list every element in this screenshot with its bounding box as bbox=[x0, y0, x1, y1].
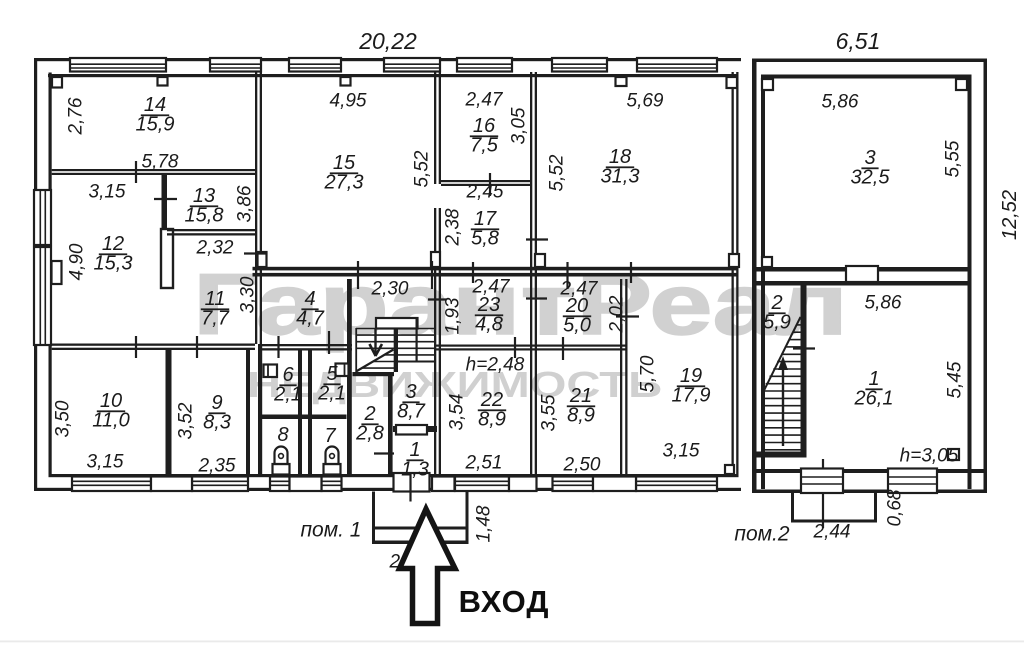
svg-text:4,90: 4,90 bbox=[67, 243, 88, 280]
svg-text:5,86: 5,86 bbox=[822, 92, 859, 113]
svg-text:2,1: 2,1 bbox=[317, 382, 346, 404]
svg-text:0,68: 0,68 bbox=[885, 489, 906, 526]
svg-text:3,15: 3,15 bbox=[663, 441, 700, 462]
svg-text:17,9: 17,9 bbox=[672, 384, 711, 406]
svg-text:8: 8 bbox=[277, 424, 288, 446]
svg-text:6,51: 6,51 bbox=[836, 28, 881, 54]
svg-text:7,7: 7,7 bbox=[201, 307, 230, 329]
svg-text:20,22: 20,22 bbox=[358, 28, 417, 54]
svg-text:пом.2: пом.2 bbox=[734, 522, 789, 545]
svg-text:h=3,05: h=3,05 bbox=[900, 446, 959, 467]
svg-text:4,8: 4,8 bbox=[475, 313, 503, 335]
svg-text:2,35: 2,35 bbox=[198, 456, 236, 477]
svg-text:5,55: 5,55 bbox=[943, 140, 964, 177]
svg-text:2,30: 2,30 bbox=[371, 279, 409, 300]
svg-text:5,52: 5,52 bbox=[547, 154, 568, 191]
svg-text:2,45: 2,45 bbox=[466, 182, 504, 203]
svg-text:15,8: 15,8 bbox=[185, 204, 224, 226]
svg-text:3,05: 3,05 bbox=[509, 107, 530, 144]
svg-text:15,9: 15,9 bbox=[136, 113, 175, 135]
svg-text:5,78: 5,78 bbox=[142, 152, 179, 173]
svg-text:5,8: 5,8 bbox=[471, 227, 499, 249]
svg-text:8,9: 8,9 bbox=[478, 408, 506, 430]
svg-text:3,54: 3,54 bbox=[447, 394, 468, 431]
svg-text:ВХОД: ВХОД bbox=[459, 584, 550, 619]
svg-text:5,0: 5,0 bbox=[563, 314, 591, 336]
svg-text:2,47: 2,47 bbox=[465, 90, 504, 111]
svg-text:2,50: 2,50 bbox=[563, 455, 601, 476]
svg-text:3,50: 3,50 bbox=[53, 400, 74, 437]
svg-text:2,38: 2,38 bbox=[443, 208, 464, 246]
svg-text:8,7: 8,7 bbox=[397, 400, 426, 422]
svg-text:3,55: 3,55 bbox=[539, 394, 560, 431]
svg-text:2,44: 2,44 bbox=[813, 522, 851, 543]
svg-text:5,86: 5,86 bbox=[865, 293, 902, 314]
svg-text:1,93: 1,93 bbox=[443, 297, 464, 334]
svg-text:27,3: 27,3 bbox=[324, 171, 364, 193]
svg-text:3,15: 3,15 bbox=[87, 452, 124, 473]
svg-text:1,3: 1,3 bbox=[401, 458, 429, 480]
svg-text:3,15: 3,15 bbox=[89, 182, 126, 203]
svg-text:12,52: 12,52 bbox=[999, 190, 1021, 240]
svg-text:26,1: 26,1 bbox=[854, 387, 894, 409]
svg-text:11,0: 11,0 bbox=[92, 409, 129, 431]
svg-text:8,9: 8,9 bbox=[567, 404, 595, 426]
svg-text:5,9: 5,9 bbox=[763, 311, 791, 333]
svg-text:3,30: 3,30 bbox=[238, 276, 259, 313]
svg-text:5,69: 5,69 bbox=[627, 91, 664, 112]
svg-text:7,5: 7,5 bbox=[470, 134, 499, 156]
svg-text:1,48: 1,48 bbox=[474, 505, 495, 542]
svg-text:2,02: 2,02 bbox=[607, 295, 628, 333]
svg-text:7: 7 bbox=[324, 425, 336, 447]
svg-text:5,52: 5,52 bbox=[412, 150, 433, 187]
svg-text:5,45: 5,45 bbox=[945, 361, 966, 398]
svg-text:2,1: 2,1 bbox=[273, 383, 302, 405]
svg-text:2,32: 2,32 bbox=[196, 238, 234, 259]
svg-text:2,8: 2,8 bbox=[355, 422, 384, 444]
svg-text:2,51: 2,51 bbox=[465, 453, 503, 474]
svg-text:8,3: 8,3 bbox=[203, 411, 231, 433]
svg-text:31,3: 31,3 bbox=[601, 165, 640, 187]
svg-text:32,5: 32,5 bbox=[851, 166, 891, 188]
svg-text:ГарантРеал: ГарантРеал bbox=[193, 257, 848, 353]
svg-text:15,3: 15,3 bbox=[94, 252, 133, 274]
svg-text:2,76: 2,76 bbox=[66, 97, 87, 135]
svg-text:4,95: 4,95 bbox=[330, 91, 367, 112]
svg-text:h=2,48: h=2,48 bbox=[466, 355, 525, 376]
svg-text:4,7: 4,7 bbox=[296, 307, 325, 329]
svg-text:пом. 1: пом. 1 bbox=[301, 518, 362, 541]
svg-text:3,86: 3,86 bbox=[235, 185, 256, 222]
svg-text:5,70: 5,70 bbox=[638, 355, 659, 392]
svg-text:3,52: 3,52 bbox=[176, 402, 197, 439]
